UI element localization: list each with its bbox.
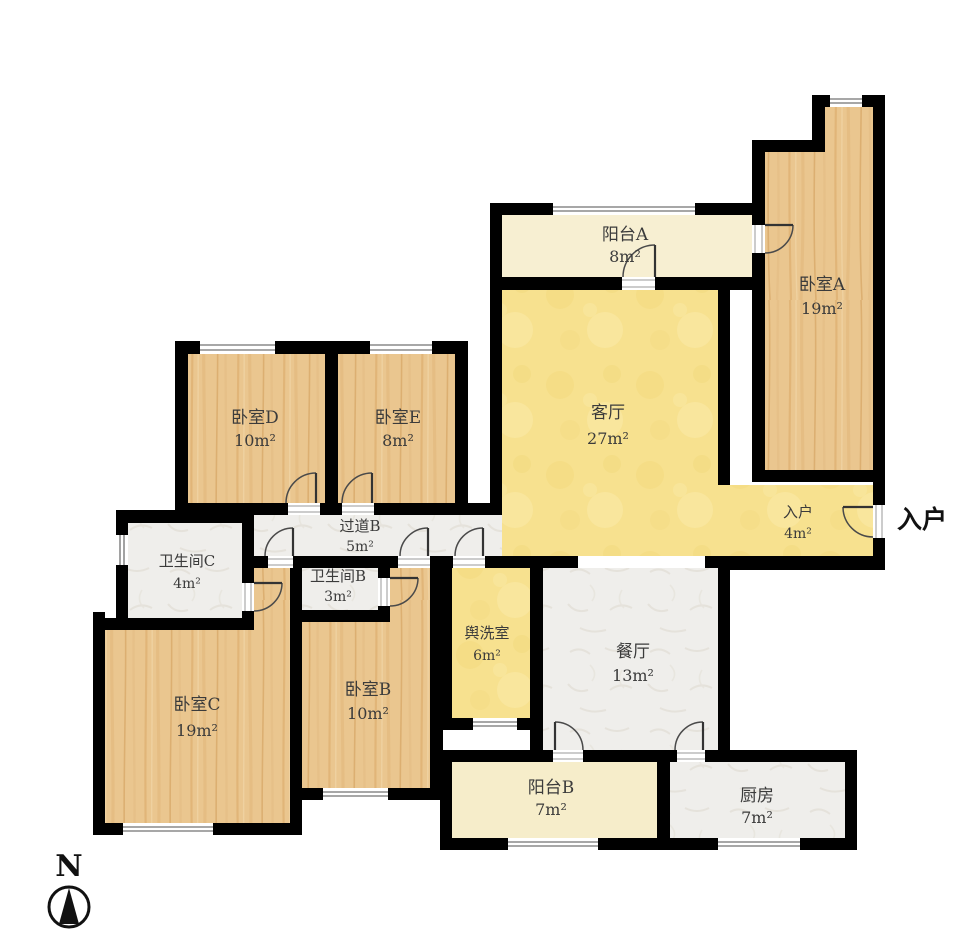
room-bedroom-b-strip: [390, 568, 430, 622]
floor-plan: 阳台A 8m² 卧室A 19m² 客厅 27m² 入户 4m² 卧室D 10m²…: [0, 0, 980, 943]
floor-plan-drawing: 阳台A 8m² 卧室A 19m² 客厅 27m² 入户 4m² 卧室D 10m²…: [0, 0, 980, 943]
label-bath-c-name: 卫生间C: [159, 552, 215, 570]
room-bedroom-d: [188, 354, 325, 503]
label-washroom-area: 6m²: [473, 648, 501, 664]
label-dining-name: 餐厅: [616, 642, 650, 662]
north-compass: N: [49, 849, 89, 927]
label-bedroom-a-area: 19m²: [801, 299, 843, 318]
label-entry-name: 入户: [783, 503, 813, 521]
label-bath-c-area: 4m²: [173, 576, 201, 592]
label-bedroom-b-area: 10m²: [347, 704, 389, 723]
room-bedroom-c-neck: [254, 568, 290, 630]
label-kitchen-area: 7m²: [741, 808, 773, 827]
label-entry-area: 4m²: [784, 526, 812, 542]
label-bedroom-e-name: 卧室E: [375, 408, 421, 428]
north-letter: N: [55, 849, 82, 884]
label-bedroom-d-name: 卧室D: [231, 408, 279, 428]
label-dining-area: 13m²: [612, 666, 654, 685]
label-balcony-b-area: 7m²: [535, 800, 567, 819]
label-kitchen-name: 厨房: [740, 786, 774, 806]
label-balcony-b-name: 阳台B: [528, 778, 575, 798]
label-bath-b-name: 卫生间B: [310, 567, 366, 585]
room-bedroom-e: [338, 354, 455, 503]
label-hallway-b-name: 过道B: [339, 517, 380, 535]
label-living-area: 27m²: [587, 429, 629, 448]
compass-needle-icon: [59, 888, 79, 924]
label-washroom-name: 舆洗室: [464, 624, 509, 642]
room-bath-c: [128, 523, 242, 618]
room-washroom: [452, 568, 530, 718]
label-living-name: 客厅: [591, 403, 625, 423]
label-bedroom-a-name: 卧室A: [799, 275, 846, 295]
entry-arrow-label: 入户: [897, 505, 947, 534]
label-bedroom-e-area: 8m²: [382, 431, 414, 450]
room-bedroom-a-upper: [825, 107, 873, 152]
label-bedroom-c-name: 卧室C: [173, 695, 220, 715]
label-balcony-a-area: 8m²: [609, 247, 641, 266]
label-balcony-a-name: 阳台A: [602, 225, 649, 245]
label-hallway-b-area: 5m²: [346, 539, 374, 555]
label-bedroom-c-area: 19m²: [176, 721, 218, 740]
label-bedroom-d-area: 10m²: [234, 431, 276, 450]
label-bath-b-area: 3m²: [324, 589, 352, 605]
label-bedroom-b-name: 卧室B: [345, 680, 392, 700]
